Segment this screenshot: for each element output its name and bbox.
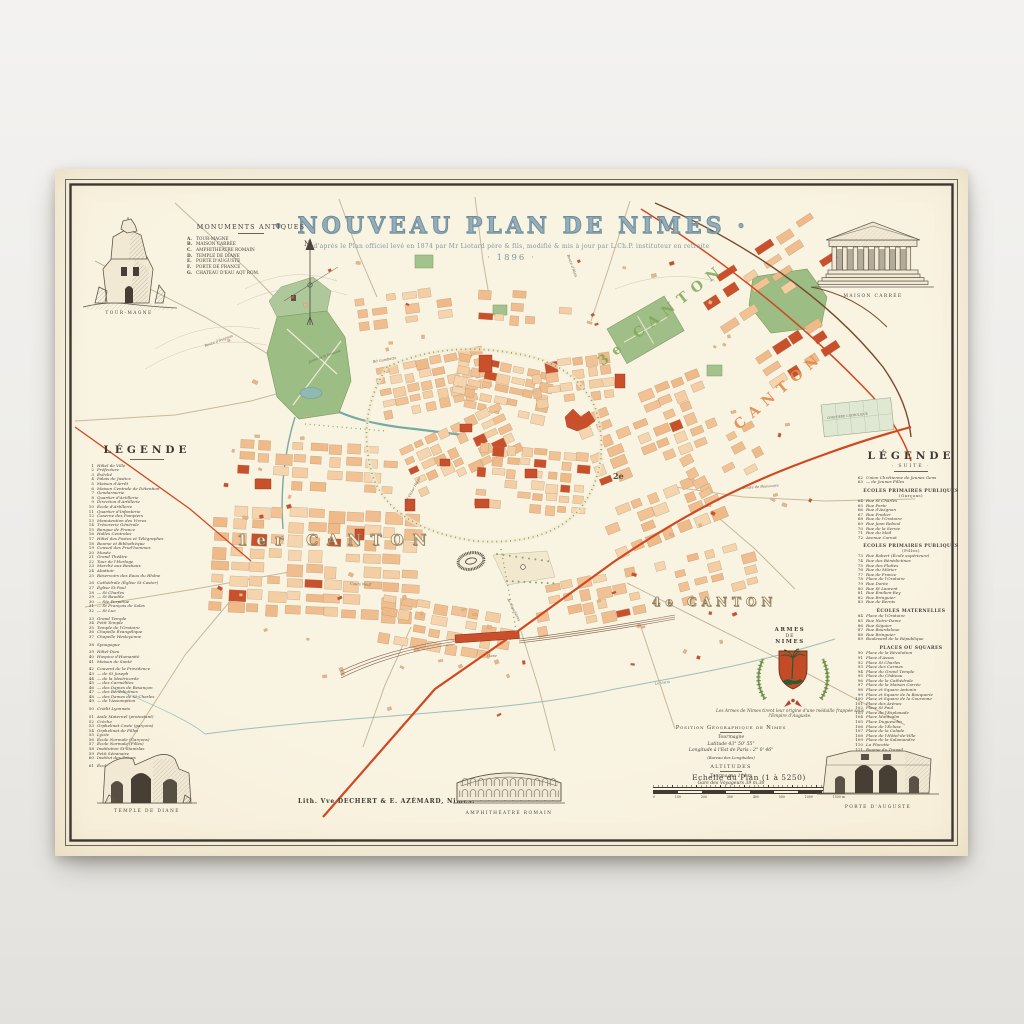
scale-tick: 100 [675,795,681,799]
scale-tick: 1000 [805,795,813,799]
city-block [271,507,282,518]
arena-map-symbol [457,550,486,571]
outskirt-building [389,341,393,344]
city-block [679,454,694,467]
road [521,631,555,751]
city-block [265,605,277,617]
outskirt-building [322,675,327,678]
city-block [478,290,491,300]
city-block [531,481,544,491]
city-block [451,606,467,617]
outskirt-building [239,594,242,597]
city-block [596,586,612,599]
city-block [494,396,508,405]
city-block [536,399,548,409]
city-block [325,579,342,589]
city-block [431,615,448,626]
outskirt-building [506,674,510,678]
city-block [246,603,258,612]
city-block [755,350,772,364]
legend-item-label: Chapelle Wesleyenne [97,635,209,640]
city-block [605,522,620,535]
city-block [602,377,614,387]
longitude-value: Longitude à l'Est de Paris : 2° 0' 46" [640,748,822,755]
outskirt-building [778,433,782,437]
city-block [364,485,376,493]
city-block [489,500,501,509]
city-block [347,444,361,455]
landmark-block [723,282,740,297]
outskirt-building [305,415,308,417]
city-block [678,581,690,592]
city-block [711,573,724,582]
outskirt-building [696,655,700,659]
legend-item-number: 25 [85,574,94,579]
legend-item: 72Avenue Carnot [854,536,968,541]
city-block [663,484,680,498]
city-block [763,361,782,376]
city-block [644,400,661,413]
city-block [423,390,434,399]
city-block [559,307,572,314]
city-block [744,564,757,575]
city-block [240,451,255,459]
city-block [213,517,227,527]
city-block [373,319,388,330]
position-sub: Tourmagne [640,735,822,742]
legend-item-number: 83 [854,600,863,605]
monuments-items: A.TOUR-MAGNEB.MAISON CARRÉEC.AMPHITHÉATR… [187,237,315,277]
city-block [562,462,572,471]
city-block [694,513,711,528]
city-block [705,418,717,429]
city-block [582,602,594,615]
legend-item-label: Crédit Lyonnais [97,707,209,712]
landmark-block [599,475,613,486]
city-block [641,442,657,455]
road [720,519,795,589]
city-block [493,414,506,425]
city-block [329,445,342,455]
city-block [310,482,326,492]
tree-dot [547,560,549,562]
city-block [415,612,426,621]
city-block [654,381,669,393]
tree-dot [529,581,531,583]
city-block [241,439,255,448]
district [208,503,423,625]
city-block [275,454,292,466]
monuments-antiques-legend: MONUMENTS ANTIQUES A.TOUR-MAGNEB.MAISON … [187,223,315,276]
legend-right-subheading: · SUITE · [854,464,968,469]
city-block [294,454,306,462]
city-block [687,553,699,562]
city-block [437,388,448,399]
city-block [347,512,364,522]
city-block [447,447,459,460]
city-block [456,467,467,477]
city-block [429,355,441,365]
rule [130,459,164,460]
landmark-block [305,579,323,588]
legend-item-label: Maison de Santé [97,660,209,665]
district [474,443,592,519]
city-block [208,601,221,610]
district [477,288,573,330]
monument-label: CHATEAU D'EAU AQT ROM. [196,271,259,277]
city-block [545,484,558,494]
city-block [506,469,515,479]
city-block [405,456,415,465]
city-block [726,431,737,441]
city-block [589,379,603,389]
city-block [549,451,561,460]
legend-item: 41Maison de Santé [85,660,209,665]
city-block [424,432,438,444]
scale-tick: 200 [701,795,707,799]
city-block [656,437,669,448]
city-block [675,569,686,578]
city-block [488,403,501,414]
landmark-block [237,465,249,474]
outskirt-building [387,706,392,710]
outskirt-building [303,303,307,307]
city-block [426,401,437,411]
outskirt-building [709,611,713,615]
district [354,285,453,332]
city-block [572,357,583,366]
city-block [383,582,399,592]
street-label: Gare [487,653,497,658]
outskirt-building [732,612,738,617]
city-block [324,607,338,617]
legend-right-items: 62Union Chrétienne de Jeunes Gens63— de … [854,476,968,752]
city-block [720,317,740,334]
city-block [545,372,558,383]
city-block [212,574,224,583]
city-block [496,373,511,385]
city-block [377,632,390,644]
city-block [250,549,264,559]
city-block [690,425,704,436]
tree-dot [547,582,549,584]
city-block [601,610,617,623]
outskirt-building [719,640,723,644]
city-block [479,393,492,402]
outskirt-building [782,503,788,508]
city-block [464,400,477,409]
tree-dot [523,581,525,583]
city-block [402,291,417,300]
city-block [631,498,643,509]
city-block [418,288,432,299]
city-block [511,303,524,312]
city-block [560,382,573,391]
city-block [428,629,440,638]
city-block [638,388,655,402]
city-block [548,472,557,480]
position-heading: Position Géographique de Nimes [640,725,822,731]
city-block [291,481,302,490]
city-block [306,606,324,614]
outskirt-building [622,266,626,269]
city-block [418,486,429,497]
city-block [511,377,525,385]
street-label: Cours Neuf [350,582,372,587]
city-block [324,567,336,579]
city-block [704,549,715,559]
city-block [407,383,420,393]
city-block [361,609,379,620]
legend-item-number: 32 [85,609,94,614]
city-block [258,453,269,462]
legend-item: 63— de Jeunes Filles [854,480,968,485]
city-block [513,290,527,298]
city-block [399,444,414,455]
legend-item-number: 50 [85,707,94,712]
canton1-label: 1er CANTON [237,531,435,549]
city-block [507,446,516,456]
city-block [616,426,631,439]
city-block [739,304,759,321]
city-block [532,493,542,501]
city-block [744,464,758,476]
landmark-block [477,467,486,477]
city-block [564,394,575,402]
city-block [510,316,519,326]
landmark-block [577,465,590,474]
landmark-block [669,419,683,432]
city-block [586,615,598,624]
legend-item-label: Rue de Bernis [866,600,968,605]
city-block [484,428,498,439]
city-block [545,506,555,516]
outskirt-building [631,663,635,666]
porte-auguste-illustration [817,741,939,799]
tree-dot [518,581,520,583]
landmark-block [813,330,828,344]
outskirt-building [458,664,463,668]
city-block [638,432,652,444]
maison-carree-illustration [810,217,936,291]
city-block [437,298,452,308]
tree-dot [496,553,498,555]
scale-tick: 0 [653,795,655,799]
city-block [509,387,523,395]
scale-tick: 500 [779,795,785,799]
rule [894,471,928,472]
outskirt-building [438,659,443,662]
city-block [559,496,569,503]
outskirt-building [224,483,229,487]
outskirt-building [259,515,264,519]
city-block [288,550,301,561]
tree-dot [512,580,514,582]
outskirt-building [722,343,726,347]
canton2-label: 2e [613,471,624,481]
city-block [380,388,392,396]
landmark-block [788,330,803,345]
outskirt-building [421,335,424,339]
city-block [233,519,246,530]
city-block [230,576,249,587]
landmark-block [478,313,493,320]
legend-item-number: 63 [854,480,863,485]
road [75,391,287,421]
city-block [564,452,577,460]
landmark-block [492,446,504,457]
legend-item: 50Crédit Lyonnais [85,707,209,712]
page-background: Bd GambettaBd Victor HugoAv. FeuchèresCo… [0,0,1024,1024]
city-block [476,489,486,496]
city-block [507,457,519,464]
city-block [546,493,557,501]
city-block [364,567,381,579]
city-block [426,641,441,653]
city-block [747,577,759,586]
city-block [395,397,408,406]
legend-item-label: Réservoirs des Eaux du Rhône [97,574,209,579]
city-block [632,604,646,614]
outskirt-building [487,625,492,629]
city-block [363,554,381,564]
city-block [707,561,722,573]
outskirt-building [420,612,423,616]
city-block [574,485,584,493]
district [600,469,729,560]
city-block [560,473,571,483]
city-block [292,442,303,450]
city-block [212,547,226,560]
outskirt-building [264,628,268,632]
city-block [287,564,303,577]
city-block [647,492,659,504]
city-block [258,440,270,450]
outskirt-building [252,379,258,384]
landmark-block [534,459,546,468]
outskirt-building [773,493,778,497]
outskirt-building [651,273,657,277]
city-block [691,381,705,393]
city-block [285,605,301,614]
temple-diane-illustration [95,745,199,807]
city-block [641,520,656,532]
city-block [453,457,464,467]
city-block [343,594,360,604]
city-block [694,576,707,585]
city-block [445,644,458,656]
city-block [328,471,343,480]
city-block [346,457,362,466]
tree-dot [515,556,517,558]
city-block [492,468,505,476]
legend-item: 32— St Luc [85,609,209,614]
outskirt-building [300,436,304,440]
outskirt-building [348,572,354,577]
city-block [517,492,530,499]
city-block [211,561,229,570]
city-block [393,386,407,397]
city-block [534,448,547,455]
legend-left-items: 1Hôtel de Ville2Préfecture3Évêché4Palais… [85,464,209,769]
outskirt-building [400,665,405,669]
city-block [402,584,420,593]
street-label: Le Vistre [654,680,671,686]
outskirt-building [631,573,637,577]
outskirt-building [594,323,598,326]
landmark-block [616,608,631,617]
city-block [522,389,533,398]
city-block [480,443,489,453]
outskirt-building [713,345,716,348]
city-block [290,507,308,517]
city-block [525,316,535,324]
rule [238,233,264,234]
legend-item-label: — de Jeunes Filles [866,480,968,485]
city-block [414,439,424,448]
city-block [435,378,446,388]
armes-line1: ARMES [730,627,850,634]
city-block [492,457,503,467]
city-block [355,298,365,306]
city-block [269,548,282,558]
tree-dot [534,558,536,560]
scale-tick: 400 [753,795,759,799]
coat-of-arms [745,643,841,707]
monuments-item: G.CHATEAU D'EAU AQT ROM. [187,271,315,277]
city-block [433,604,448,616]
city-block [444,353,458,363]
legend-item-number: 37 [85,635,94,640]
city-block [654,561,666,572]
city-block [402,570,418,579]
city-block [309,509,325,518]
legend-item-number: 89 [854,637,863,642]
porte-auguste-caption: PORTE D'AUGUSTE [817,805,939,810]
legend-left: LÉGENDE 1Hôtel de Ville2Préfecture3Évêch… [85,445,209,769]
city-block [604,389,614,398]
city-block [533,388,542,399]
city-block [722,462,735,473]
city-block [359,322,370,332]
legend-item-number: 61 [85,764,94,769]
outskirt-building [255,435,260,438]
city-block [311,443,328,451]
city-block [557,358,571,366]
city-block [530,414,545,426]
city-block [398,609,411,620]
outskirt-building [497,713,502,717]
city-block [323,594,340,603]
city-block [557,506,566,513]
road [640,624,675,729]
city-block [383,399,396,407]
city-block [410,394,421,402]
city-block [287,578,303,587]
city-block [438,309,453,319]
canton4-label: 4e CANTON [652,595,777,609]
city-block [235,506,248,517]
altitudes-heading: ALTITUDES [640,764,822,770]
city-block [405,373,415,383]
outskirt-building [641,626,646,629]
tree-dot [535,582,537,584]
city-block [390,374,403,384]
outskirt-building [683,649,688,654]
tree-dot [528,558,530,560]
outskirt-building [473,613,478,616]
legend-right: LÉGENDE · SUITE · 62Union Chrétienne de … [854,451,968,752]
